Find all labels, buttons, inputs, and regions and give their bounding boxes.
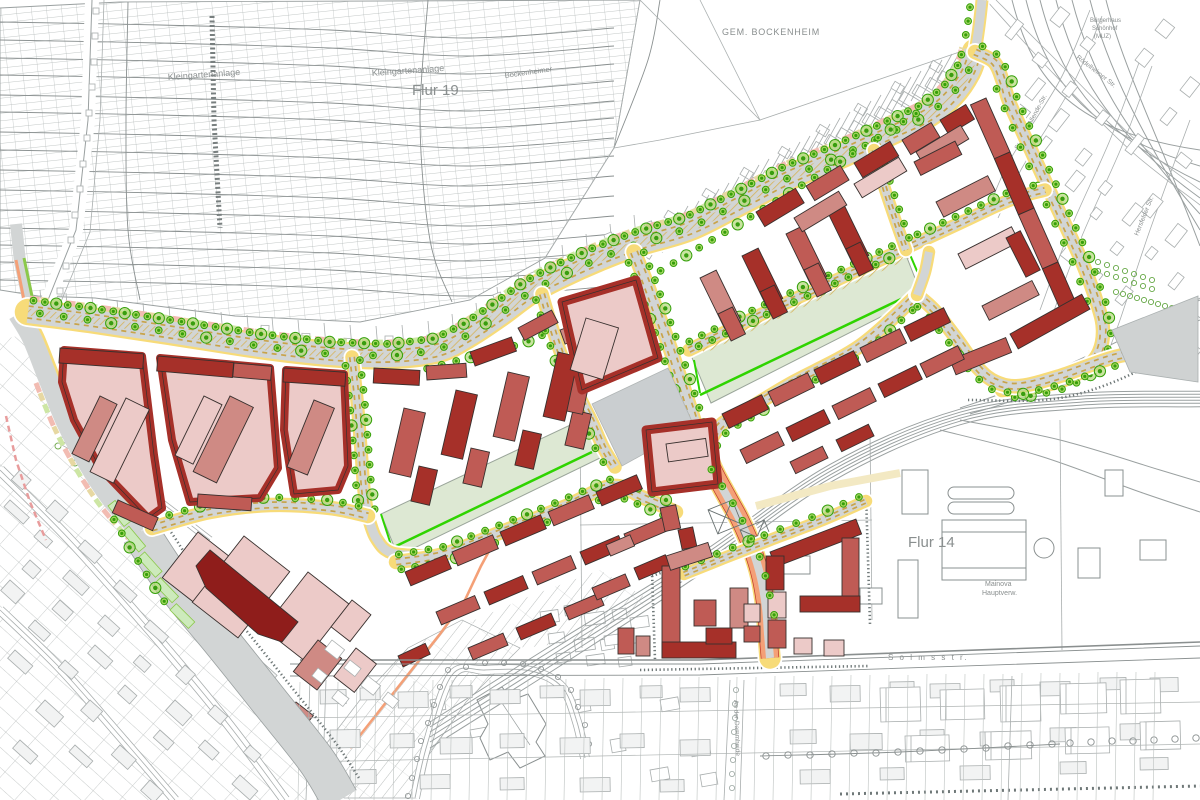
svg-text:S o l m s s t r.: S o l m s s t r. [888, 653, 968, 662]
svg-text:Flur 19: Flur 19 [412, 82, 459, 99]
svg-text:Hauptverw.: Hauptverw. [982, 590, 1017, 597]
svg-text:Schönhof: Schönhof [1092, 26, 1118, 32]
svg-text:(MUZ): (MUZ) [1094, 34, 1111, 40]
svg-text:GEM. BOCKENHEIM: GEM. BOCKENHEIM [722, 27, 820, 37]
svg-text:Mainova: Mainova [985, 581, 1012, 588]
svg-text:Bürgerhaus: Bürgerhaus [1090, 18, 1121, 24]
svg-text:Flur 14: Flur 14 [908, 534, 955, 551]
